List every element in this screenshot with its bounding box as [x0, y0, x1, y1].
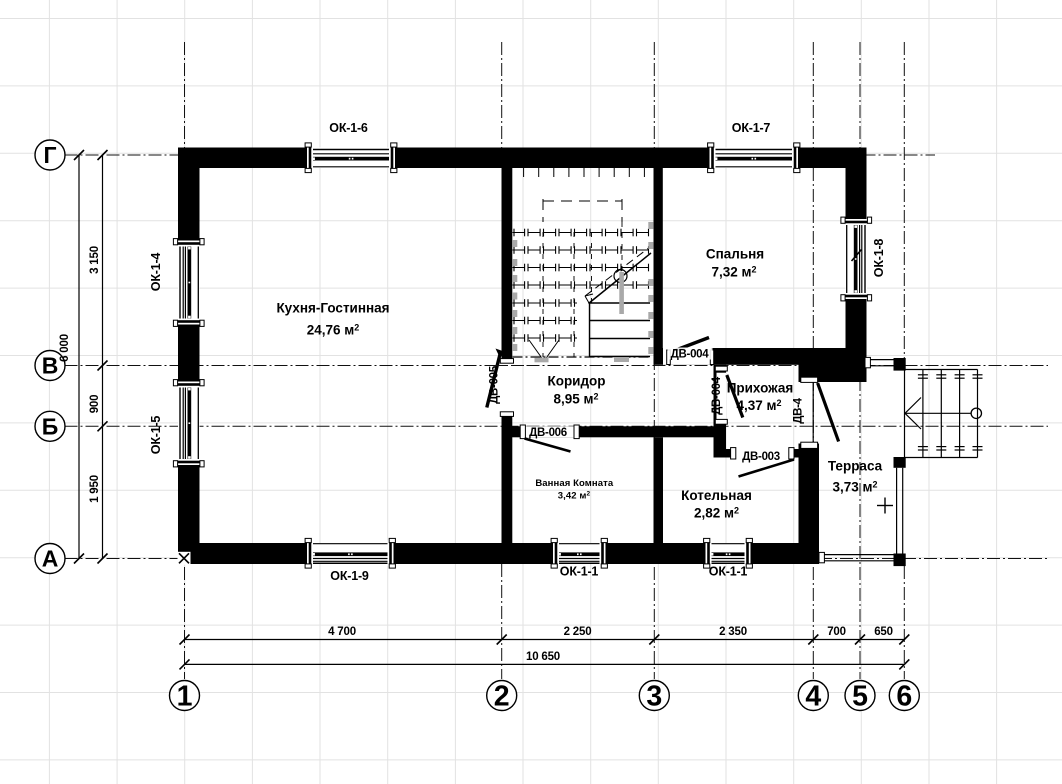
svg-text:ОК-1-9: ОК-1-9 [330, 569, 369, 583]
svg-text:ДВ-004: ДВ-004 [671, 349, 710, 361]
svg-text:1 950: 1 950 [89, 475, 101, 503]
svg-text:4 700: 4 700 [328, 626, 356, 638]
svg-text:ДВ-006: ДВ-006 [529, 427, 567, 439]
svg-text:ОК-1-4: ОК-1-4 [149, 253, 163, 292]
svg-text:ОК-1-8: ОК-1-8 [872, 239, 886, 278]
svg-text:10 650: 10 650 [526, 651, 560, 663]
svg-text:Ванная Комната: Ванная Комната [535, 478, 614, 489]
svg-text:2: 2 [494, 681, 510, 713]
svg-text:Спальня: Спальня [706, 247, 764, 262]
svg-text:ОК-1-1: ОК-1-1 [560, 565, 599, 579]
svg-text:ДВ-4: ДВ-4 [793, 397, 805, 423]
svg-text:3 150: 3 150 [89, 246, 101, 274]
svg-text:4: 4 [805, 681, 821, 713]
svg-text:Г: Г [43, 142, 56, 168]
svg-text:6 000: 6 000 [59, 334, 71, 362]
svg-text:1: 1 [177, 681, 193, 713]
svg-text:ДВ-003: ДВ-003 [742, 451, 780, 463]
svg-text:ОК-1-5: ОК-1-5 [149, 416, 163, 455]
svg-text:Кухня-Гостинная: Кухня-Гостинная [276, 301, 389, 316]
svg-text:ОК-1-1: ОК-1-1 [709, 565, 748, 579]
svg-text:7,32 м2: 7,32 м2 [711, 265, 756, 280]
svg-text:Котельная: Котельная [681, 488, 752, 503]
svg-text:Б: Б [42, 413, 59, 439]
svg-text:2 250: 2 250 [564, 626, 592, 638]
svg-text:3: 3 [646, 681, 662, 713]
svg-text:ДВ-004: ДВ-004 [711, 376, 723, 415]
svg-text:ОК-1-7: ОК-1-7 [732, 121, 771, 135]
svg-text:3,73 м2: 3,73 м2 [832, 480, 877, 495]
svg-text:2 350: 2 350 [719, 626, 747, 638]
svg-text:Прихожая: Прихожая [727, 381, 794, 396]
svg-text:Терраса: Терраса [828, 459, 883, 474]
svg-text:650: 650 [874, 626, 893, 638]
svg-text:5: 5 [852, 681, 868, 713]
svg-text:6: 6 [896, 681, 912, 713]
svg-text:8,95 м2: 8,95 м2 [553, 392, 598, 407]
svg-text:900: 900 [89, 395, 101, 414]
svg-text:700: 700 [827, 626, 846, 638]
svg-text:ОК-1-6: ОК-1-6 [329, 121, 368, 135]
svg-text:В: В [42, 353, 59, 379]
svg-text:3,42 м2: 3,42 м2 [558, 491, 591, 502]
svg-text:Коридор: Коридор [547, 374, 605, 389]
svg-text:2,82 м2: 2,82 м2 [694, 506, 739, 521]
svg-text:ДВ-005: ДВ-005 [489, 365, 501, 404]
svg-text:4,37 м2: 4,37 м2 [736, 398, 781, 413]
svg-text:А: А [42, 546, 59, 572]
svg-text:24,76 м2: 24,76 м2 [307, 323, 360, 338]
